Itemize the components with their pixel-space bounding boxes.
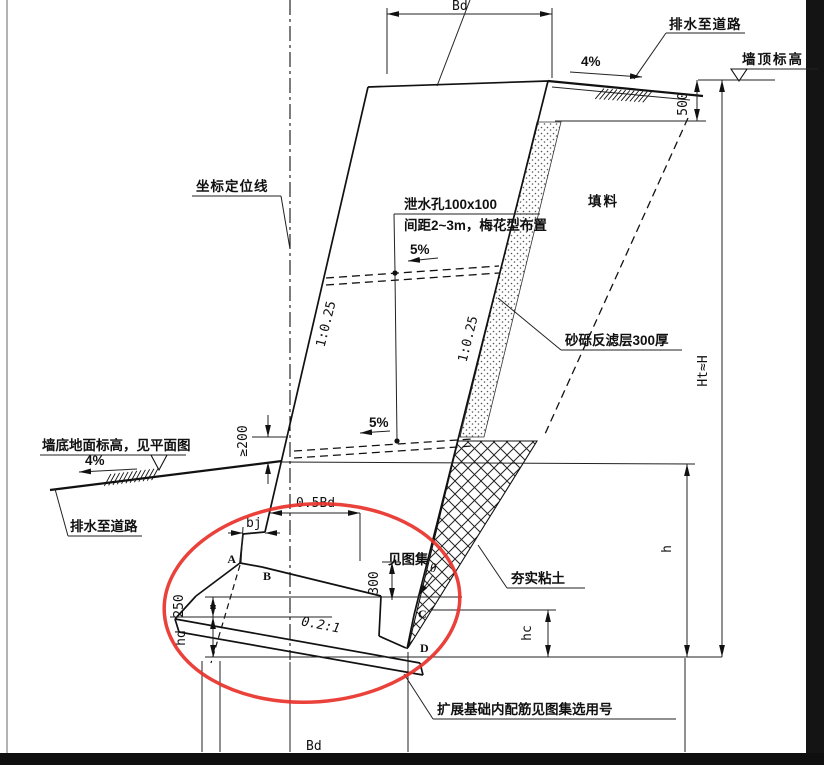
wall-top-elev-label: 墙顶标高 <box>742 51 804 67</box>
footing-slope-label: 0.2:1 <box>300 614 341 636</box>
heel-ledge <box>262 567 381 596</box>
heel-step-bottom <box>379 636 406 648</box>
slope4-top-label: 4% <box>581 54 601 69</box>
foundation-front-slope <box>196 563 240 596</box>
spread-footing-slab <box>175 619 423 675</box>
theta-label: θ <box>430 560 437 575</box>
wall-back-face <box>414 81 548 615</box>
sand-gravel-filter-band <box>460 122 561 437</box>
annotation-wall-top-elev: 墙顶标高 <box>698 51 818 81</box>
filter-layer-label: 砂砾反滤层300厚 <box>565 332 669 348</box>
slope5-lower-label: 5% <box>369 415 389 430</box>
wall-bottom-elev-label: 墙底地面标高，见平面图 <box>42 437 191 453</box>
annotation-drain-top-right: 排水至道路 <box>634 16 745 79</box>
dim-500-label: 500 <box>676 92 691 115</box>
weep-leader-lower <box>395 274 397 440</box>
level-symbol-top <box>731 69 747 81</box>
fill-material-label: 填料 <box>588 193 619 209</box>
annotation-footing-note: 扩展基础内配筋见图集选用号 <box>404 674 676 719</box>
annotation-filter-layer: 砂砾反滤层300厚 <box>498 298 682 350</box>
annotation-compacted-clay: 夯实粘土 <box>478 545 585 588</box>
page-right-bar <box>806 0 824 765</box>
weep-hole-spacing-label: 间距2~3m，梅花型布置 <box>404 217 547 233</box>
point-a-label: A <box>227 552 236 566</box>
dim-hd-label: hd <box>174 630 189 646</box>
heel-step-down <box>379 596 381 636</box>
weep-drain-lower-1 <box>294 439 472 451</box>
weep-drain-upper-2 <box>326 273 499 285</box>
annotation-coord-line: 坐标定位线 <box>192 178 290 249</box>
dim-300-label: 300 <box>367 571 382 594</box>
dim-ge200-label: ≥200 <box>236 425 251 456</box>
dim-hc-label: hc <box>520 625 535 641</box>
toe-step-top <box>243 532 265 534</box>
level-symbol-bottom <box>151 455 167 470</box>
slab-top-edge <box>175 619 420 663</box>
toe-bottom <box>240 563 262 567</box>
page-bottom-bar <box>0 753 824 765</box>
footing-note-label: 扩展基础内配筋见图集选用号 <box>437 701 613 717</box>
retaining-wall-cross-section-drawing: Bd 排水至道路 4% 墙顶标高 500 Ht≈H h hc <box>0 0 824 765</box>
weep-drain-lower-2 <box>294 446 472 458</box>
page: Bd 排水至道路 4% 墙顶标高 500 Ht≈H h hc <box>0 0 824 765</box>
weep-leader-dot-lower <box>394 438 399 443</box>
annotation-slope5-lower: 5% <box>360 415 390 433</box>
annotation-slope4-left: 4% <box>79 453 137 472</box>
point-d-label: D <box>420 641 429 655</box>
slab-left-cap <box>175 619 179 632</box>
point-b-label: B <box>263 569 271 583</box>
dim-bd-top: Bd <box>387 0 552 86</box>
weep-leader-dot-upper <box>392 270 397 275</box>
slope5-upper-label: 5% <box>410 242 430 257</box>
toe-hidden-line <box>211 565 240 663</box>
slope4-left-label: 4% <box>85 453 105 468</box>
dim-h: h <box>660 464 687 657</box>
dim-300: 300 <box>367 562 400 600</box>
weep-hole-title-label: 泄水孔100x100 <box>404 196 497 212</box>
weep-drain-upper-1 <box>326 266 499 278</box>
annotation-slope5-upper: 5% <box>408 242 438 261</box>
point-c-label: C <box>418 607 427 621</box>
dim-bj-label: bj <box>246 516 262 531</box>
wall-front-face <box>265 87 368 532</box>
excavation-boundary-dashed <box>545 118 688 434</box>
drain-top-right-label: 排水至道路 <box>669 16 742 32</box>
see-atlas-label: 见图集 <box>388 551 429 567</box>
dim-250-label: 250 <box>172 594 187 617</box>
dim-ht-label: Ht≈H <box>696 355 711 386</box>
dim-ge200: ≥200 <box>236 415 288 484</box>
dim-bd-top-label: Bd <box>452 0 468 14</box>
annotation-wall-bottom-elev: 墙底地面标高，见平面图 <box>40 437 191 470</box>
batter-right-label: 1:0.25 <box>456 315 482 364</box>
compacted-clay-label: 夯实粘土 <box>510 570 565 586</box>
weep-leader-upper <box>394 214 395 272</box>
dim-bd-bottom-label: Bd <box>306 739 322 754</box>
compacted-clay-wedge <box>408 441 537 648</box>
annotation-drain-bottom-left: 排水至道路 <box>55 489 142 536</box>
drain-bottom-left-label: 排水至道路 <box>70 518 138 534</box>
coord-line-label: 坐标定位线 <box>196 178 269 194</box>
dim-ht-h: Ht≈H <box>696 80 722 657</box>
wall-top-edge <box>368 81 548 87</box>
annotation-slope4-top: 4% <box>570 54 642 77</box>
dim-h-label: h <box>660 545 675 553</box>
